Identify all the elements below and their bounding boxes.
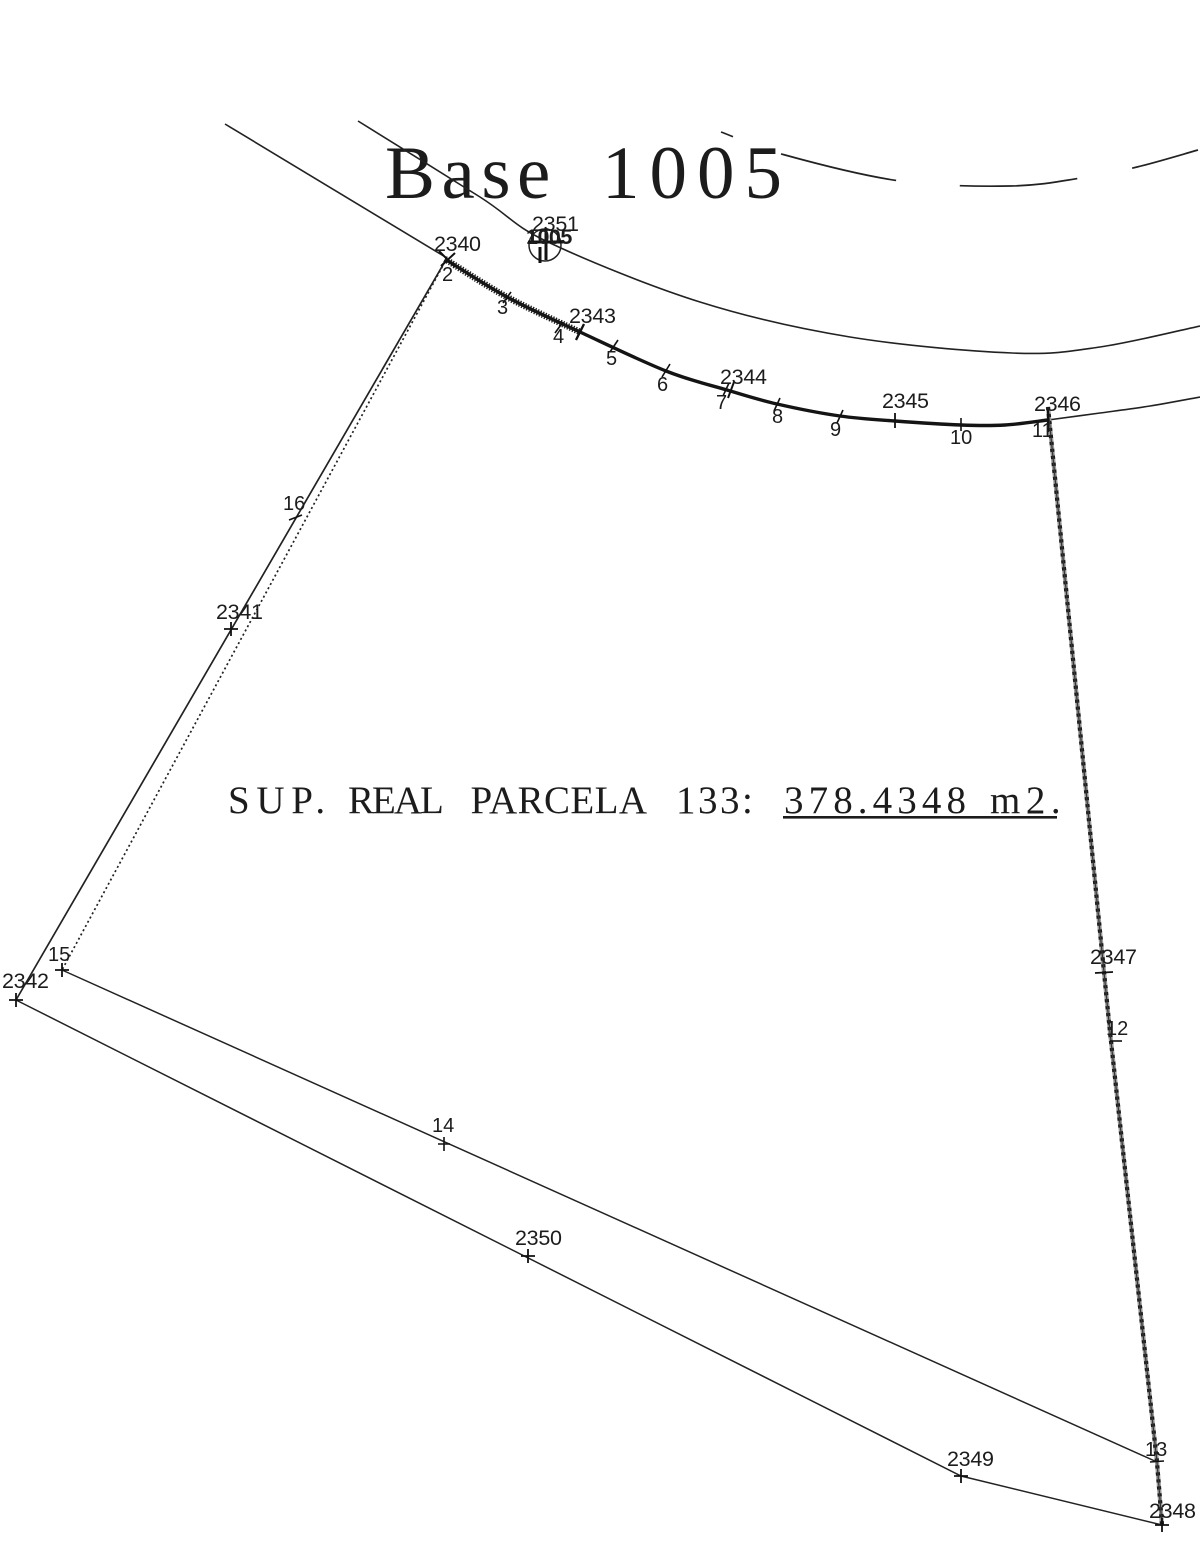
svg-text:2343: 2343 (569, 304, 616, 328)
svg-text:2349: 2349 (947, 1447, 994, 1471)
svg-text:3: 3 (497, 297, 508, 319)
svg-text:2348: 2348 (1149, 1499, 1196, 1523)
svg-text:2345: 2345 (882, 389, 929, 413)
svg-text:2: 2 (442, 264, 453, 286)
svg-text:4: 4 (553, 326, 564, 348)
svg-text:15: 15 (48, 944, 70, 966)
svg-text:2341: 2341 (216, 600, 263, 624)
svg-text:14: 14 (432, 1115, 454, 1137)
svg-text:10: 10 (950, 427, 972, 449)
svg-text:6: 6 (657, 374, 668, 396)
svg-text:11: 11 (1032, 420, 1053, 442)
svg-text:5: 5 (606, 348, 617, 370)
svg-text:SUP.REALPARCELA133:378.4348m2.: SUP.REALPARCELA133:378.4348m2. (228, 779, 1066, 822)
svg-text:2351: 2351 (532, 212, 579, 236)
svg-text:2342: 2342 (2, 969, 49, 993)
svg-text:2346: 2346 (1034, 392, 1081, 416)
svg-text:12: 12 (1106, 1018, 1128, 1040)
svg-text:2350: 2350 (515, 1226, 562, 1250)
svg-text:13: 13 (1145, 1439, 1167, 1461)
svg-text:2347: 2347 (1090, 945, 1137, 969)
svg-text:2340: 2340 (434, 232, 481, 256)
svg-text:9: 9 (830, 419, 841, 441)
svg-text:7: 7 (716, 392, 727, 414)
svg-text:16: 16 (283, 493, 305, 515)
svg-text:2344: 2344 (720, 365, 767, 389)
svg-text:8: 8 (772, 406, 783, 428)
